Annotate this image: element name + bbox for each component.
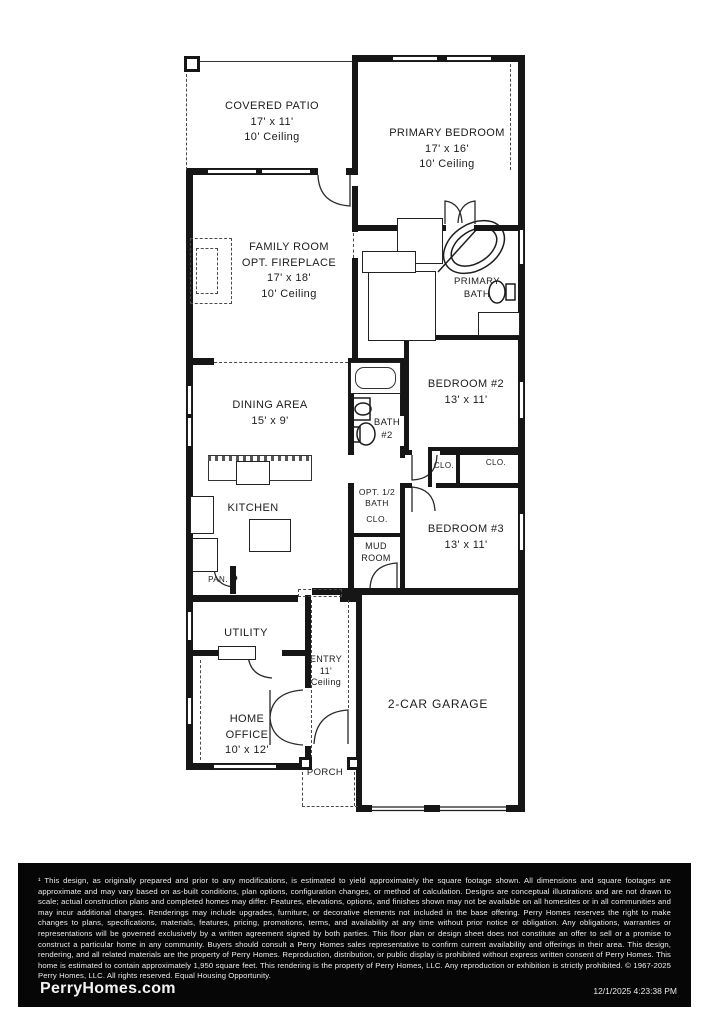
room-dims: 17' x 16': [389, 142, 505, 158]
door-arc-bedroom3: [412, 487, 435, 512]
room-dims: 10' x 12': [225, 743, 269, 759]
label-closet-hall: CLO.: [434, 461, 454, 471]
window-bedroom-top-1: [393, 56, 437, 61]
room-dims: 13' x 11': [428, 538, 504, 554]
floor-plan: COVERED PATIO 17' x 11' 10' Ceiling PRIM…: [0, 0, 709, 850]
wall-utility-top-a: [186, 595, 298, 602]
room-dims: 13' x 11': [428, 393, 504, 409]
room-name: OFFICE: [225, 728, 269, 744]
room-name: ROOM: [361, 553, 391, 565]
window-office-bottom: [214, 764, 276, 769]
label-porch: PORCH: [307, 766, 343, 779]
wall-garage-bottom-a: [356, 805, 372, 812]
room-name: BATH: [454, 288, 500, 301]
wall-garage-bottom-b: [424, 805, 440, 812]
wall-garage-left: [356, 595, 362, 807]
room-name: ENTRY: [310, 654, 342, 666]
room-name: BEDROOM #3: [428, 522, 504, 538]
timestamp: 12/1/2025 4:23:38 PM: [593, 986, 677, 996]
room-name: HOME: [225, 712, 269, 728]
room-option: OPT. FIREPLACE: [242, 256, 336, 272]
room-name: PRIMARY: [454, 275, 500, 288]
room-dims: 15' x 9': [232, 414, 307, 430]
room-name: FAMILY ROOM: [242, 240, 336, 256]
range-box: [190, 496, 214, 534]
linen-box: [362, 251, 416, 273]
dash-entry-left: [311, 600, 312, 758]
room-ceiling: 10' Ceiling: [242, 287, 336, 303]
wall-closet-divider: [456, 447, 460, 487]
room-dims: 17' x 11': [225, 115, 319, 131]
room-dims: 17' x 18': [242, 271, 336, 287]
utility-washer: [218, 646, 256, 660]
window-right-bedroom2: [519, 382, 524, 418]
label-covered-patio: COVERED PATIO 17' x 11' 10' Ceiling: [225, 99, 319, 146]
room-name: MUD: [361, 541, 391, 553]
window-right-bedroom3: [519, 514, 524, 550]
label-family-room: FAMILY ROOM OPT. FIREPLACE 17' x 18' 10'…: [242, 240, 336, 302]
kitchen-island: [249, 519, 291, 552]
label-mud-room: MUD ROOM: [361, 541, 391, 564]
door-arc-patio: [318, 175, 350, 206]
room-name: PRIMARY BEDROOM: [389, 126, 505, 142]
wall-pantry-stub: [230, 566, 236, 594]
wall-dining-stub: [186, 358, 214, 365]
window-left-dining-2: [187, 418, 192, 446]
dash-porch-bottom: [302, 806, 358, 807]
label-bedroom2: BEDROOM #2 13' x 11': [428, 377, 504, 408]
wall-right: [518, 55, 525, 812]
room-name: DINING AREA: [232, 398, 307, 414]
room-name: COVERED PATIO: [225, 99, 319, 115]
window-left-office: [187, 698, 192, 724]
wall-spine-upper: [352, 62, 358, 172]
dash-patio-left: [186, 74, 187, 170]
porch-post-left: [299, 757, 312, 770]
label-bath2: BATH #2: [374, 416, 400, 442]
wall-closetrow-bottom-b: [436, 483, 525, 488]
dash-porch-right: [354, 772, 355, 806]
room-name: OPT. 1/2: [359, 487, 395, 498]
wall-garage-bottom-c: [506, 805, 525, 812]
label-half-bath: OPT. 1/2 BATH: [359, 487, 395, 509]
dash-family-dining-opening: [214, 362, 348, 363]
wall-spine-family-b: [352, 258, 358, 366]
wall-closet-left: [428, 447, 432, 487]
porch-post-right: [347, 757, 360, 770]
window-right-bath: [519, 230, 524, 264]
window-left-dining-1: [187, 386, 192, 414]
wall-bedroom2-bottom-a: [404, 450, 412, 455]
patio-top-edge: [200, 61, 352, 62]
label-primary-bath: PRIMARY BATH: [454, 275, 500, 301]
dash-fireplace-inner: [196, 248, 218, 294]
window-bedroom-top-2: [447, 56, 491, 61]
label-primary-bedroom: PRIMARY BEDROOM 17' x 16' 10' Ceiling: [389, 126, 505, 173]
room-name: BEDROOM #2: [428, 377, 504, 393]
wall-bath-top-b: [474, 225, 522, 231]
bath2-tub-inner: [355, 367, 396, 389]
dash-office-interior: [200, 660, 201, 760]
fridge-box: [192, 538, 218, 572]
label-home-office: HOME OFFICE 10' x 12': [225, 712, 269, 759]
dash-kitchen-hall-door: [298, 589, 342, 597]
door-arc-primary-right: [458, 201, 475, 224]
label-utility: UTILITY: [224, 626, 268, 642]
window-left-utility: [187, 612, 192, 640]
door-arc-front-entry: [314, 710, 348, 744]
website-text: PerryHomes.com: [40, 980, 176, 998]
door-arc-mudroom: [370, 563, 397, 590]
room-ceiling: 11': [310, 666, 342, 678]
patio-corner-post: [184, 56, 200, 72]
sink-icon: [355, 403, 371, 415]
dash-entry-right: [348, 600, 349, 708]
footer-bar: ¹ This design, as originally prepared an…: [18, 863, 691, 1007]
dash-porch-left: [302, 772, 303, 806]
door-arc-office-bottom: [270, 718, 303, 745]
label-garage: 2-CAR GARAGE: [388, 696, 488, 712]
toilet-tank: [506, 284, 515, 300]
label-entry: ENTRY 11' Ceiling: [310, 654, 342, 689]
label-half-bath-closet: CLO.: [366, 514, 387, 525]
dash-bedroom-interior: [510, 64, 511, 170]
door-arc-office-top: [270, 690, 303, 717]
disclaimer-text: ¹ This design, as originally prepared an…: [38, 876, 671, 982]
label-bedroom3: BEDROOM #3 13' x 11': [428, 522, 504, 553]
label-kitchen: KITCHEN: [227, 501, 278, 517]
dash-spine-cased-opening: [353, 233, 354, 258]
label-pantry: PAN.: [208, 575, 228, 585]
window-patio-bottom-1: [208, 169, 256, 174]
room-ceiling: 10' Ceiling: [225, 130, 319, 146]
wall-closetrow-bottom-a: [404, 483, 412, 488]
room-name: BATH: [374, 416, 400, 429]
wall-closet-top: [428, 447, 522, 451]
window-patio-bottom-2: [262, 169, 310, 174]
design-sheet-page: { "plan": { "covered_patio": {"name": "C…: [0, 0, 709, 1024]
room-name: #2: [374, 429, 400, 442]
wall-top-primary-bedroom: [352, 55, 525, 62]
wall-bedroom3-bottom: [352, 588, 525, 595]
room-ceiling: Ceiling: [310, 677, 342, 689]
label-closet-bed2: CLO.: [486, 458, 506, 468]
label-dining-area: DINING AREA 15' x 9': [232, 398, 307, 429]
room-ceiling: 10' Ceiling: [389, 157, 505, 173]
primary-closet-box: [368, 271, 436, 341]
primary-vanity: [478, 312, 520, 336]
room-name: BATH: [359, 498, 395, 509]
wall-bath2-right-b: [400, 446, 405, 458]
kitchen-sink-box: [236, 461, 270, 485]
bathtub-icon: [434, 210, 514, 285]
wall-halfbath-bottom: [348, 533, 405, 537]
